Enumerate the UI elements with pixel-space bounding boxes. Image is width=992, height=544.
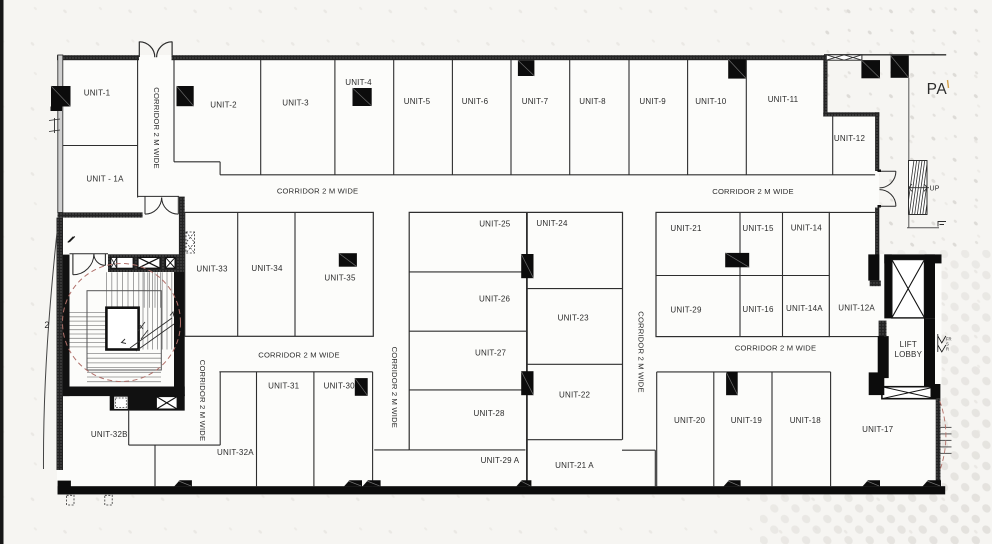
- svg-text:UNIT-2: UNIT-2: [210, 101, 237, 110]
- svg-text:UNIT-11: UNIT-11: [768, 95, 799, 104]
- svg-text:UNIT-26: UNIT-26: [479, 295, 511, 304]
- svg-text:UNIT-30: UNIT-30: [324, 382, 356, 391]
- svg-text:UNIT-15: UNIT-15: [742, 224, 774, 233]
- svg-text:CORRIDOR 2 M WIDE: CORRIDOR 2 M WIDE: [152, 87, 161, 168]
- svg-text:UNIT-4: UNIT-4: [345, 78, 372, 87]
- svg-text:PA: PA: [927, 81, 948, 98]
- svg-text:UNIT - 1A: UNIT - 1A: [86, 175, 124, 184]
- svg-text:CORRIDOR 2 M WIDE: CORRIDOR 2 M WIDE: [277, 187, 358, 196]
- svg-text:CORRIDOR 2 M WIDE: CORRIDOR 2 M WIDE: [637, 311, 646, 392]
- svg-text:CORRIDOR 2 M WIDE: CORRIDOR 2 M WIDE: [390, 347, 399, 428]
- svg-text:UNIT-10: UNIT-10: [695, 97, 727, 106]
- svg-text:UNIT-8: UNIT-8: [579, 97, 606, 106]
- svg-text:UNIT-14: UNIT-14: [791, 224, 823, 233]
- svg-text:LIFT: LIFT: [900, 340, 917, 349]
- svg-text:UNIT-9: UNIT-9: [639, 97, 666, 106]
- svg-text:CORRIDOR 2 M WIDE: CORRIDOR 2 M WIDE: [198, 360, 207, 441]
- svg-text:UNIT-20: UNIT-20: [674, 416, 706, 425]
- svg-text:UNIT-18: UNIT-18: [790, 416, 822, 425]
- svg-text:UNIT-21: UNIT-21: [670, 224, 702, 233]
- svg-text:UNIT-7: UNIT-7: [522, 97, 549, 106]
- svg-text:LOBBY: LOBBY: [894, 350, 922, 359]
- svg-text:UNIT-25: UNIT-25: [479, 219, 511, 228]
- svg-text:CORRIDOR 2 M WIDE: CORRIDOR 2 M WIDE: [712, 187, 793, 196]
- svg-text:UNIT-16: UNIT-16: [742, 305, 774, 314]
- svg-text:UNIT-14A: UNIT-14A: [786, 304, 823, 313]
- svg-text:UNIT-23: UNIT-23: [558, 314, 590, 323]
- svg-text:UNIT-31: UNIT-31: [268, 382, 300, 391]
- svg-text:UP: UP: [929, 186, 939, 193]
- svg-text:UNIT-29 A: UNIT-29 A: [481, 456, 520, 465]
- svg-text:UNIT-19: UNIT-19: [731, 416, 763, 425]
- svg-text:UNIT-22: UNIT-22: [559, 391, 591, 400]
- svg-text:UNIT-17: UNIT-17: [862, 425, 894, 434]
- svg-text:UNIT-29: UNIT-29: [670, 305, 702, 314]
- svg-text:CORRIDOR 2 M WIDE: CORRIDOR 2 M WIDE: [258, 351, 339, 360]
- svg-text:UNIT-32B: UNIT-32B: [91, 430, 128, 439]
- svg-text:UNIT-35: UNIT-35: [324, 274, 356, 283]
- svg-text:UNIT-12A: UNIT-12A: [838, 304, 875, 313]
- svg-text:UNIT-1: UNIT-1: [84, 89, 111, 98]
- svg-text:UNIT-12: UNIT-12: [834, 134, 866, 143]
- svg-text:UNIT-5: UNIT-5: [404, 97, 431, 106]
- svg-text:CORRIDOR 2 M WIDE: CORRIDOR 2 M WIDE: [735, 343, 816, 352]
- svg-text:UNIT-24: UNIT-24: [536, 219, 568, 228]
- svg-text:UNIT-21 A: UNIT-21 A: [555, 461, 594, 470]
- svg-text:UNIT-32A: UNIT-32A: [217, 448, 254, 457]
- svg-text:R: R: [946, 347, 949, 352]
- svg-text:UNIT-3: UNIT-3: [282, 99, 309, 108]
- svg-text:UNIT-34: UNIT-34: [251, 264, 283, 273]
- svg-text:UNIT-27: UNIT-27: [475, 349, 507, 358]
- svg-text:UNIT-6: UNIT-6: [462, 97, 489, 106]
- svg-text:UNIT-33: UNIT-33: [196, 265, 228, 274]
- svg-text:UNIT-28: UNIT-28: [474, 409, 506, 418]
- svg-text:2: 2: [44, 320, 49, 330]
